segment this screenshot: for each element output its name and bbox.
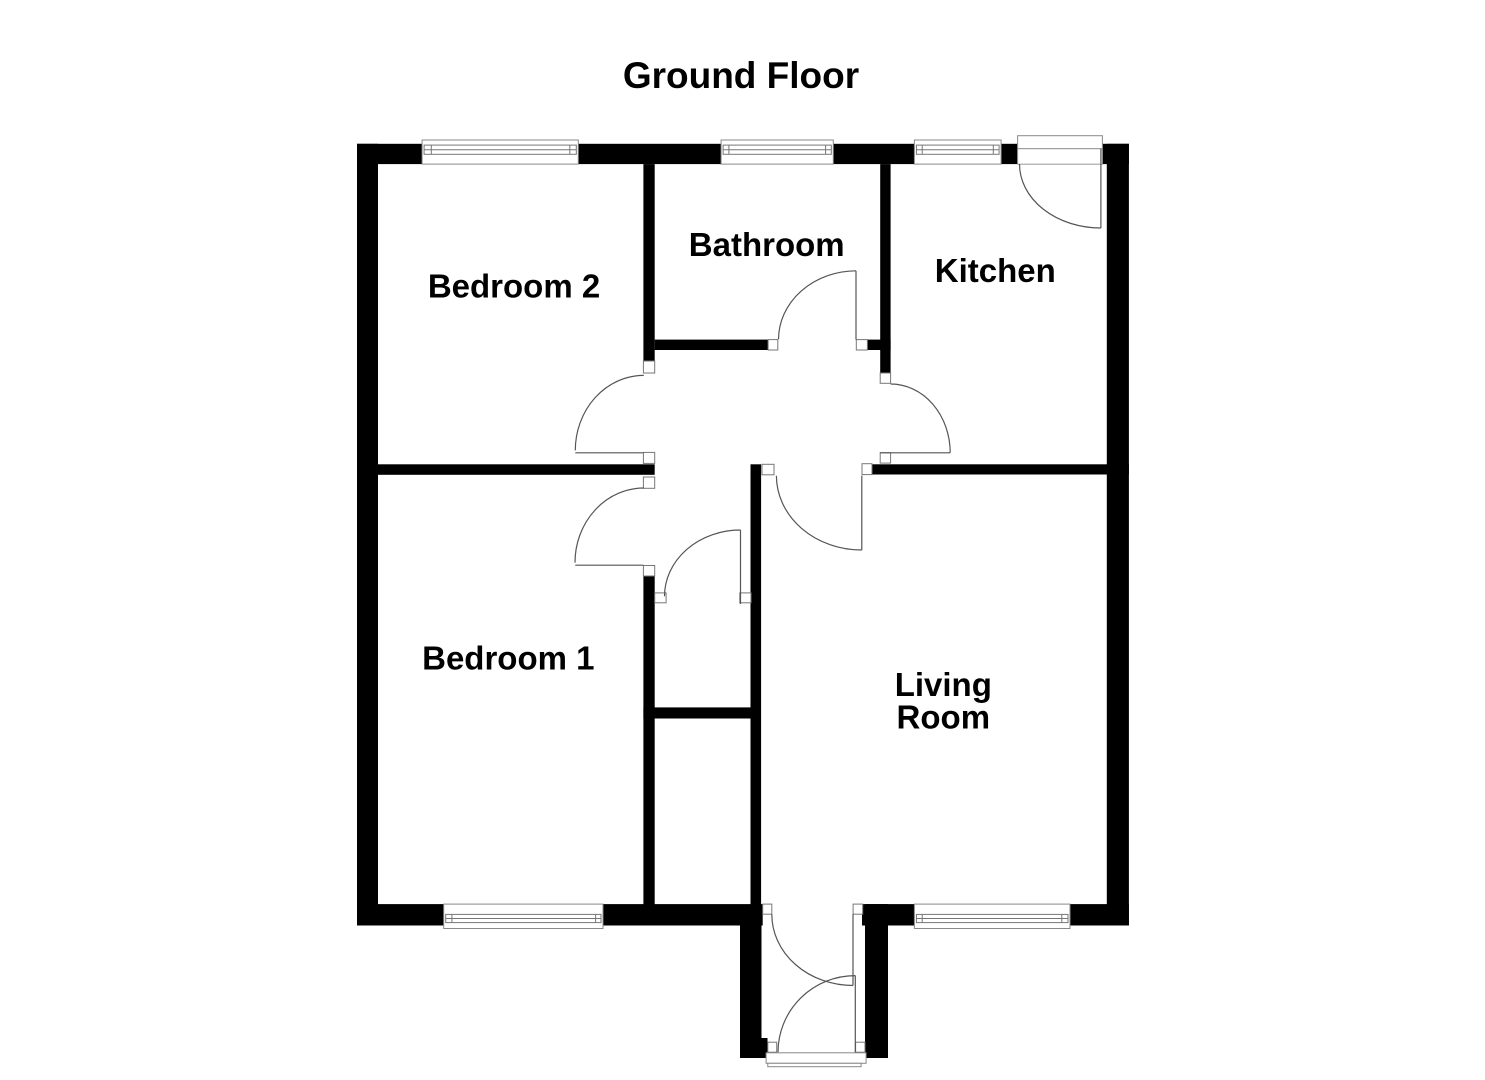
svg-text:Ground Floor: Ground Floor bbox=[623, 55, 859, 96]
svg-text:Room: Room bbox=[897, 698, 991, 735]
svg-text:Bedroom 1: Bedroom 1 bbox=[422, 639, 594, 676]
svg-text:Kitchen: Kitchen bbox=[935, 252, 1056, 289]
svg-text:Bathroom: Bathroom bbox=[689, 226, 845, 263]
svg-text:Bedroom 2: Bedroom 2 bbox=[428, 268, 600, 305]
svg-text:Living: Living bbox=[895, 666, 992, 703]
